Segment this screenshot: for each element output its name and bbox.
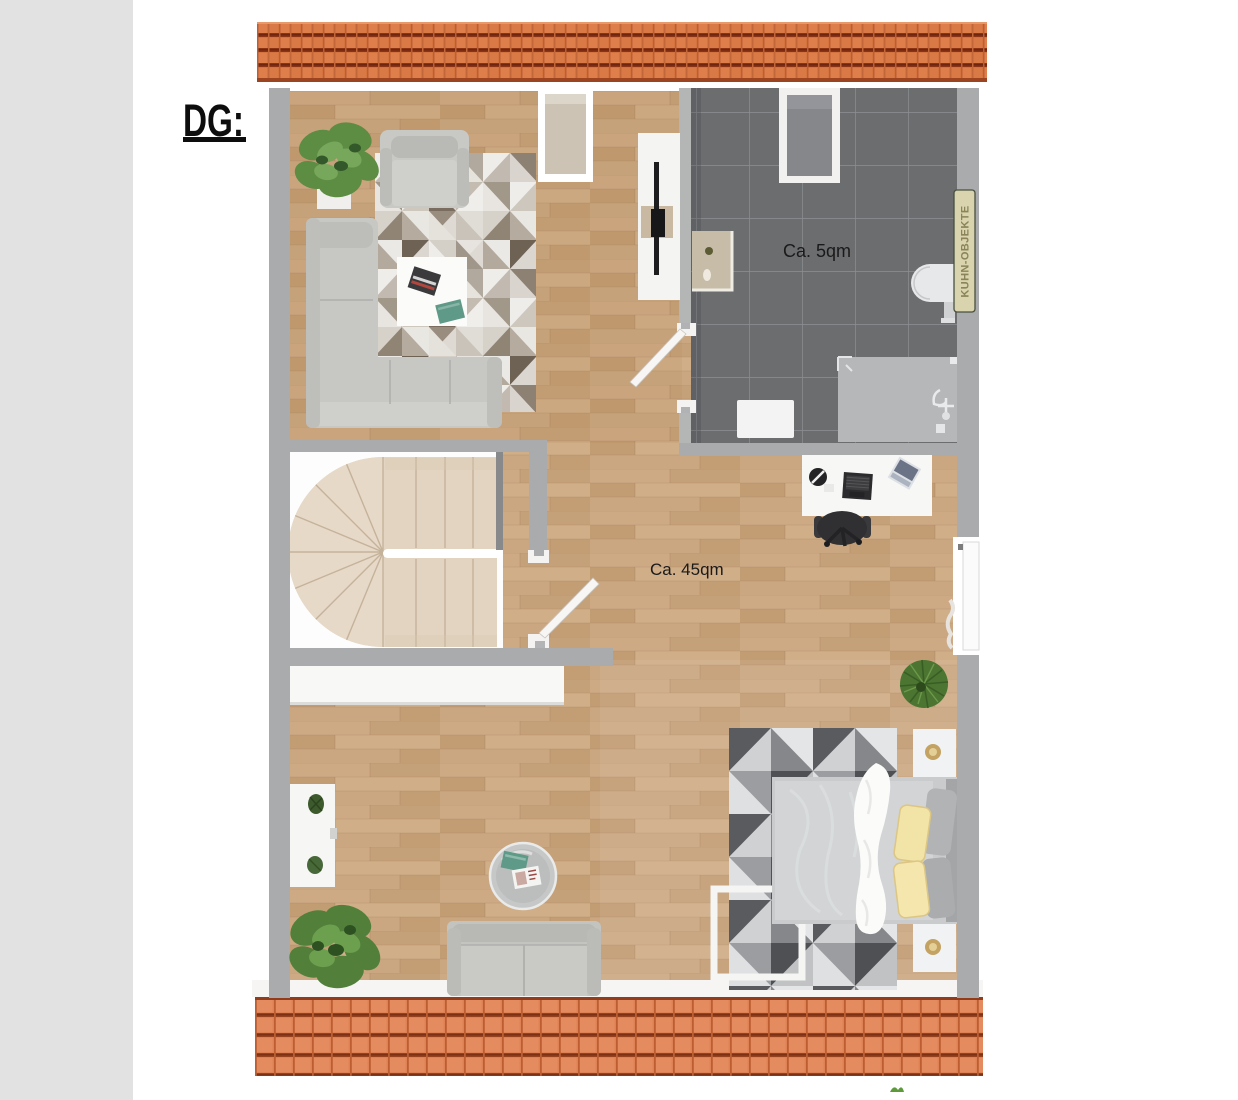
svg-text:Ca. 45qm: Ca. 45qm bbox=[650, 560, 724, 579]
svg-text:Ca. 5qm: Ca. 5qm bbox=[783, 241, 851, 261]
svg-text:KUHN-OBJEKTE: KUHN-OBJEKTE bbox=[960, 205, 972, 297]
